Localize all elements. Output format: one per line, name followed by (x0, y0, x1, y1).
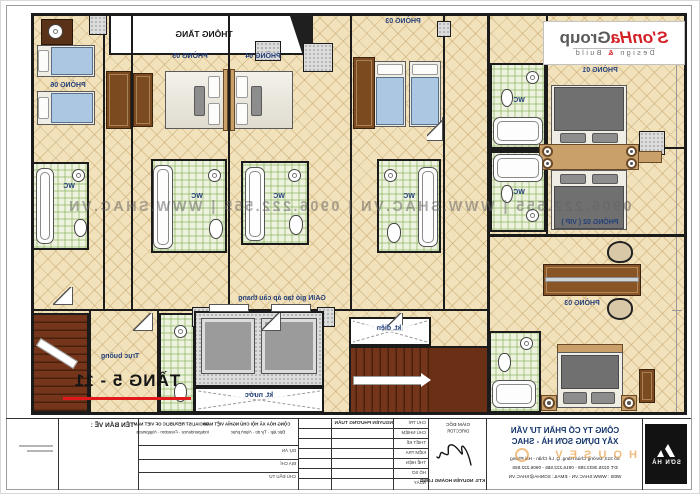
lamp (623, 397, 635, 409)
toilet (74, 219, 87, 237)
room02-pillow (560, 174, 586, 184)
door-leaf (133, 313, 153, 331)
row-line (299, 448, 429, 449)
floor-range-label: TẦNG 5 - 11 (59, 371, 195, 391)
wall-corridor-east (443, 13, 445, 311)
door-leaf (427, 117, 443, 141)
water-shaft-label: kt. nước (231, 392, 287, 399)
blanket (561, 355, 619, 389)
company-phone: ĐT: 0225.3833.288 - 0916.222.555 - 0906.… (500, 466, 629, 471)
desk-rail (545, 277, 639, 282)
pillow (208, 76, 220, 98)
row-line (139, 459, 299, 460)
wall-room04-05 (228, 13, 230, 311)
floor-range-underline (63, 397, 191, 400)
pillow (412, 64, 438, 75)
toilet (498, 353, 511, 372)
elevator-door (271, 304, 311, 312)
row-label-4: THỂ HIỆN (406, 461, 426, 465)
room02-label: PHÒNG 02 ( VIP ) (545, 219, 635, 226)
pillow (377, 64, 403, 75)
row-value-top: NGUYỄN PHƯƠNG TUẤN (335, 421, 393, 426)
bathtub (492, 380, 536, 408)
electric-shaft-label: kt. điện (361, 325, 417, 332)
row-line (299, 438, 429, 439)
toilet (387, 223, 401, 243)
row-label-2: THIẾT KẾ (407, 441, 426, 445)
sink (208, 169, 221, 182)
room01-pillow (592, 133, 618, 143)
nightstand-strip (539, 144, 639, 170)
pillow (236, 103, 248, 125)
water-shaft (194, 387, 324, 413)
titleblock-top-line (6, 418, 691, 419)
dimension-line (676, 37, 677, 413)
investor-label: CHỦ ĐẦU TƯ (269, 475, 296, 479)
room05-label: PHÒNG 05 (159, 53, 221, 60)
blue-blanket (51, 47, 93, 75)
sonha-corner-logo: SƠN HÀ (645, 424, 687, 484)
stair-arrow (353, 376, 423, 385)
room05-bed (165, 71, 225, 129)
column (303, 43, 333, 72)
room03-lower-label: PHÒNG 03 (547, 300, 617, 307)
wardrobe (133, 73, 153, 127)
room04-bed (233, 71, 293, 129)
pillow (591, 392, 615, 404)
wall-top (31, 13, 687, 16)
column (89, 15, 107, 35)
director-label: GIÁM ĐỐC (436, 423, 481, 428)
toilet (209, 219, 223, 239)
room06-bed (37, 45, 95, 77)
floor-plan-sheet: THÔNG TẦNG S'onHaGroup Design & Build PH… (0, 0, 700, 494)
republic-underline (139, 445, 299, 446)
sonha-emblem-icon (655, 442, 677, 458)
pillow (38, 97, 49, 119)
wc-label: WC (507, 97, 531, 104)
wall-room02-03 (489, 234, 687, 237)
brand-line: S'onHaGroup (560, 29, 669, 46)
republic-en1: SOCIALIST REPUBLIC OF VIET NAM (147, 423, 209, 427)
wc-label: WC (57, 183, 81, 190)
pillow (236, 76, 248, 98)
brand-gray-text: Group (560, 28, 611, 47)
bathtub (493, 117, 543, 145)
wardrobe (353, 57, 375, 129)
room03-upper-bed (374, 61, 406, 127)
tagline-design: Design (618, 50, 655, 57)
pillow (208, 103, 220, 125)
row-line (299, 458, 429, 459)
sonha-group-logo: S'onHaGroup Design & Build (543, 21, 685, 65)
bathtub (493, 154, 543, 182)
tagline-build: Build (573, 50, 601, 57)
lamp (626, 158, 637, 169)
watermark-orange: H O U S E V (517, 449, 637, 461)
lamp (543, 397, 555, 409)
brand-red-text: S'onHa (611, 28, 669, 47)
room03-upper-label: PHÒNG 03 (365, 18, 441, 25)
service-core-label: Trục buồng (93, 353, 147, 360)
elevator-cab (202, 319, 254, 373)
void-label: THÔNG TẦNG (139, 29, 269, 39)
stair-arrow-head (421, 373, 431, 387)
room02-pillow (592, 174, 618, 184)
titleblock-divider (138, 418, 139, 490)
sink (174, 325, 187, 338)
room01-label: PHÒNG 01 (557, 67, 643, 74)
room06-label: PHÒNG 06 (39, 82, 97, 89)
row-line (139, 472, 299, 473)
sink (72, 169, 85, 182)
sink (520, 337, 533, 350)
director-label-en: DIRECTOR (438, 430, 477, 434)
company-name-line2: XÂY DỰNG SƠN HÀ - SHAC (489, 437, 641, 446)
small-text-bar (27, 450, 53, 452)
tagline-amp: & (606, 50, 614, 57)
room01-bed (551, 85, 627, 145)
drawing-name-label: TÊN BẢN VẼ : (91, 422, 134, 429)
elevator-door (209, 304, 249, 312)
main-stair (349, 346, 489, 414)
row-line (299, 478, 429, 479)
wardrobe (106, 71, 131, 129)
wall-room05-niche (131, 13, 133, 311)
titleblock-divider (642, 418, 643, 490)
dimension-tick (672, 310, 682, 311)
small-text-bar (19, 445, 53, 447)
pressurization-label: GAIN gió tạo áp cầu thang (223, 295, 341, 302)
corner-logo-text: SƠN HÀ (651, 460, 681, 466)
company-name-line1: CÔNG TY CỔ PHẦN TƯ VẤN (489, 426, 641, 435)
titleblock-divider (486, 418, 487, 490)
watermark-strip: 0906.222.555 | WWW.SHAC.VN | 0906.222.55… (9, 196, 689, 218)
door-leaf (53, 287, 73, 305)
titleblock-divider (58, 418, 59, 490)
chair (607, 241, 633, 263)
accent-pillow (251, 86, 262, 116)
blue-blanket (376, 77, 404, 125)
republic-en2: Independence - Freedom - Happiness (147, 431, 209, 435)
row-line (299, 468, 429, 469)
signature-icon (435, 435, 477, 469)
brand-tagline: Design & Build (573, 48, 654, 57)
sink (288, 169, 301, 182)
stair-arrow (36, 338, 78, 369)
wall-room03-04 (350, 13, 352, 311)
company-web-email: WEB : WWW.SHAC.VN - EMAIL: SONHA@SHAC.VN (500, 475, 629, 480)
room01-blanket (554, 87, 624, 131)
wardrobe (639, 369, 655, 403)
lamp (542, 158, 553, 169)
row-label-0: CHỦ TRÌ (409, 421, 426, 425)
blue-blanket (51, 93, 93, 123)
wall-corridor-west (487, 13, 490, 346)
room04-headboard (230, 69, 235, 131)
pillow (563, 392, 587, 404)
row-label-5: HỒ SƠ (412, 471, 426, 475)
toilet (289, 215, 303, 235)
stair-landing (429, 348, 487, 412)
vanity-basin (48, 24, 63, 39)
pillow (38, 50, 49, 72)
project-label: DỰ ÁN (282, 449, 296, 453)
room05-headboard (223, 69, 228, 131)
row-label-3: KIỂM TRA (406, 451, 426, 455)
republic-vn2: Độc lập - Tự do - Hạnh phúc (226, 431, 291, 435)
lamp (542, 146, 553, 157)
room01-pillow (560, 133, 586, 143)
accent-pillow (194, 86, 205, 116)
sink (526, 71, 539, 84)
room06-bed (37, 91, 95, 125)
room03-lower-bed (557, 352, 623, 408)
wall-niche-room06 (103, 13, 105, 311)
door-leaf (261, 313, 281, 331)
wc-label: WC (507, 189, 531, 196)
row-label-1: CHỦ NHIỆM (402, 431, 426, 435)
sink (384, 169, 397, 182)
row-line (299, 428, 429, 429)
lamp (626, 146, 637, 157)
location-label: ĐỊA CHỈ (280, 462, 296, 466)
architect-name: KTS. NGUYỄN HOÀNG LONG (431, 479, 486, 484)
republic-vn1: CỘNG HÒA XÃ HỘI CHỦ NGHĨA VIỆT NAM (226, 423, 291, 427)
room04-label: PHÒNG 04 (232, 53, 294, 60)
watermark-orange-ring (515, 448, 529, 462)
mirrored-drawing-wrapper: THÔNG TẦNG S'onHaGroup Design & Build PH… (1, 1, 699, 493)
